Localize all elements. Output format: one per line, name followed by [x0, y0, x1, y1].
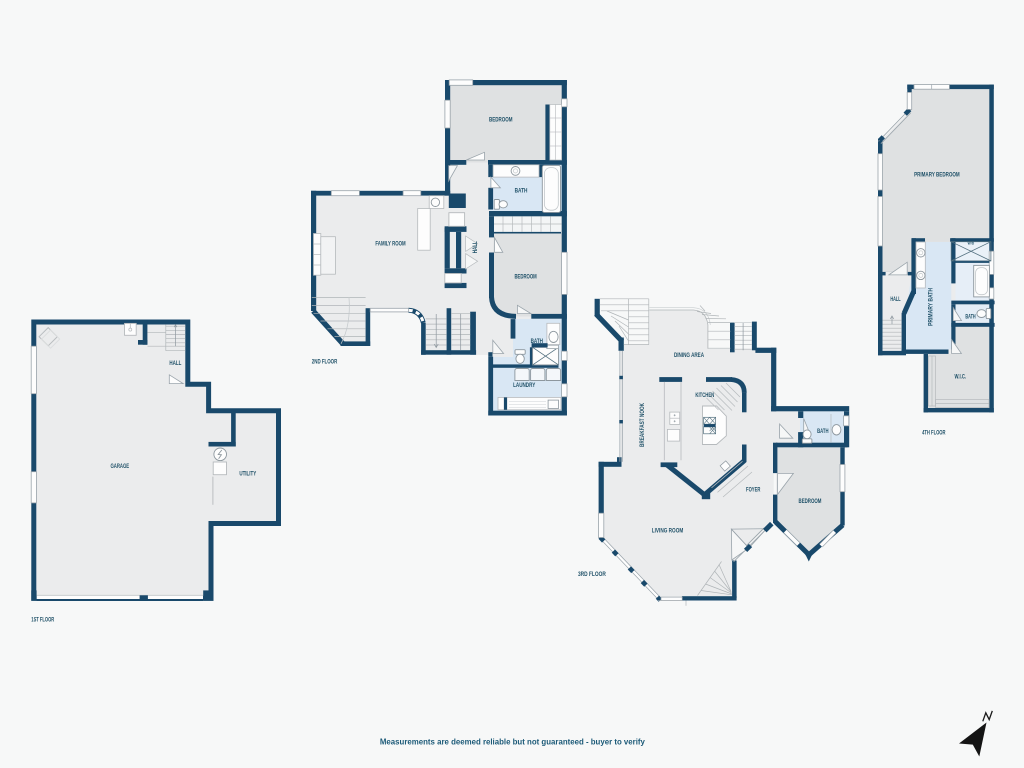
svg-text:BATH: BATH [531, 338, 544, 345]
svg-text:PRIMARY BATH: PRIMARY BATH [928, 288, 935, 326]
svg-text:BATH: BATH [817, 428, 829, 435]
svg-text:Measurements are deemed reliab: Measurements are deemed reliable but not… [380, 738, 646, 747]
svg-text:4TH FLOOR: 4TH FLOOR [922, 429, 946, 436]
svg-text:W/D: W/D [968, 242, 975, 246]
svg-text:GARAGE: GARAGE [110, 463, 129, 470]
svg-text:BREAKFAST NOOK: BREAKFAST NOOK [639, 403, 646, 447]
svg-text:2ND FLOOR: 2ND FLOOR [312, 359, 338, 366]
svg-text:W.I.C.: W.I.C. [954, 374, 966, 381]
svg-text:1ST FLOOR: 1ST FLOOR [31, 617, 54, 624]
svg-text:BEDROOM: BEDROOM [489, 117, 513, 124]
svg-text:DINING AREA: DINING AREA [674, 352, 704, 359]
svg-text:LAUNDRY: LAUNDRY [513, 382, 536, 389]
svg-text:HALL: HALL [890, 296, 900, 303]
svg-text:HALL: HALL [472, 241, 479, 253]
svg-text:FAMILY ROOM: FAMILY ROOM [375, 240, 405, 247]
svg-text:BATH: BATH [515, 187, 528, 194]
svg-text:UTILITY: UTILITY [239, 470, 256, 477]
svg-text:BEDROOM: BEDROOM [514, 274, 536, 281]
svg-text:BATH: BATH [965, 314, 976, 321]
svg-text:PRIMARY BEDROOM: PRIMARY BEDROOM [914, 171, 960, 178]
svg-text:BEDROOM: BEDROOM [799, 498, 822, 505]
svg-text:LIVING ROOM: LIVING ROOM [652, 528, 684, 535]
svg-text:KITCHEN: KITCHEN [695, 392, 714, 399]
svg-text:3RD FLOOR: 3RD FLOOR [578, 571, 606, 578]
svg-text:FOYER: FOYER [746, 487, 761, 494]
svg-text:HALL: HALL [169, 360, 181, 367]
